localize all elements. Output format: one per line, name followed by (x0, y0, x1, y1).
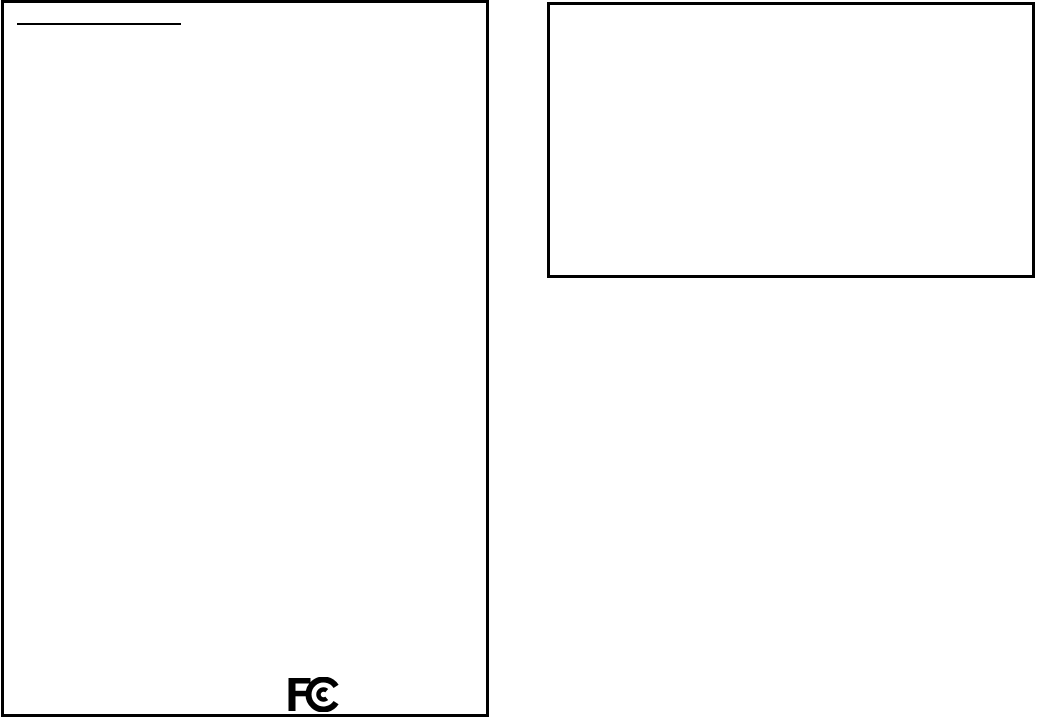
document-page (0, 0, 1038, 725)
left-artwork-box (1, 0, 489, 717)
fcc-logo-double-c (309, 680, 337, 710)
blank-title-underline (17, 23, 181, 25)
fcc-logo-icon (288, 677, 341, 712)
right-artwork-box (547, 2, 1035, 278)
